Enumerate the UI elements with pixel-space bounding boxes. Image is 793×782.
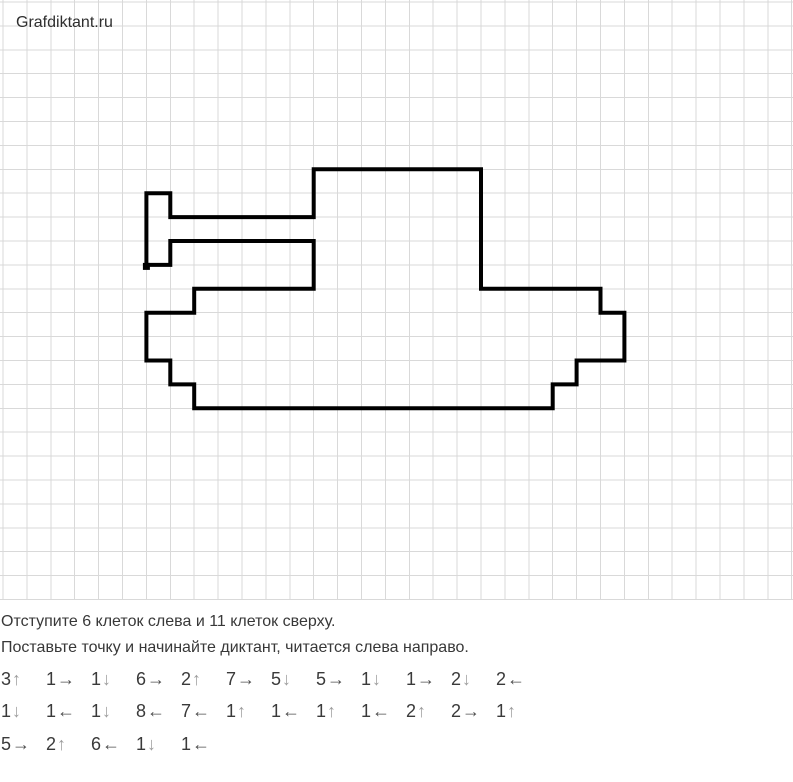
step-count: 1 — [316, 701, 326, 721]
arrow-up-icon: ↑ — [416, 701, 426, 721]
arrow-left-icon: ← — [371, 701, 390, 721]
grid-canvas — [0, 0, 793, 601]
dictation-step: 1← — [181, 734, 226, 755]
arrow-left-icon: ← — [56, 701, 75, 721]
arrow-down-icon: ↓ — [101, 701, 111, 721]
step-count: 1 — [91, 669, 101, 689]
arrow-right-icon: → — [11, 734, 30, 754]
dictation-step: 1→ — [46, 669, 91, 690]
dictation-step: 2→ — [451, 701, 496, 722]
dictation-step: 2↑ — [406, 701, 451, 722]
dictation-step: 1↑ — [316, 701, 361, 722]
step-count: 2 — [181, 669, 191, 689]
step-count: 1 — [136, 734, 146, 754]
dictation-step: 2← — [496, 669, 541, 690]
arrow-right-icon: → — [326, 669, 345, 689]
arrow-up-icon: ↑ — [236, 701, 246, 721]
arrow-up-icon: ↑ — [11, 669, 21, 689]
dictation-step: 7→ — [226, 669, 271, 690]
step-count: 7 — [226, 669, 236, 689]
dictation-step: 1↓ — [91, 669, 136, 690]
dictation-step: 1↓ — [91, 701, 136, 722]
dictation-step: 3↑ — [1, 669, 46, 690]
dictation-step: 2↑ — [181, 669, 226, 690]
arrow-left-icon: ← — [281, 701, 300, 721]
start-point-dot — [143, 263, 150, 270]
dictation-step: 1← — [46, 701, 91, 722]
step-count: 5 — [271, 669, 281, 689]
dictation-step: 1← — [361, 701, 406, 722]
arrow-left-icon: ← — [101, 734, 120, 754]
dictation-step: 1→ — [406, 669, 451, 690]
instruction-line-2: Поставьте точку и начинайте диктант, чит… — [1, 638, 469, 658]
dictation-step: 1↓ — [136, 734, 181, 755]
instruction-line-1: Отступите 6 клеток слева и 11 клеток све… — [1, 612, 469, 632]
step-count: 5 — [1, 734, 11, 754]
dictation-row: 5→2↑6←1↓1← — [1, 728, 541, 761]
dictation-step: 1← — [271, 701, 316, 722]
step-count: 2 — [451, 701, 461, 721]
dictation-step: 2↑ — [46, 734, 91, 755]
arrow-left-icon: ← — [506, 669, 525, 689]
dictation-step: 5→ — [316, 669, 361, 690]
step-count: 1 — [91, 701, 101, 721]
step-count: 2 — [451, 669, 461, 689]
dictation-step: 1↑ — [226, 701, 271, 722]
arrow-left-icon: ← — [191, 734, 210, 754]
dictation-row: 3↑1→1↓6→2↑7→5↓5→1↓1→2↓2← — [1, 663, 541, 696]
step-count: 2 — [496, 669, 506, 689]
instructions: Отступите 6 клеток слева и 11 клеток све… — [1, 612, 469, 664]
step-count: 1 — [226, 701, 236, 721]
arrow-up-icon: ↑ — [326, 701, 336, 721]
arrow-right-icon: → — [56, 669, 75, 689]
arrow-down-icon: ↓ — [146, 734, 156, 754]
dictation-step: 6← — [91, 734, 136, 755]
step-count: 7 — [181, 701, 191, 721]
arrow-down-icon: ↓ — [461, 669, 471, 689]
dictation-step: 5→ — [1, 734, 46, 755]
dictation-step: 1↑ — [496, 701, 541, 722]
grid-lines — [0, 0, 793, 600]
step-count: 1 — [496, 701, 506, 721]
site-title: Grafdiktant.ru — [16, 14, 113, 32]
step-count: 1 — [1, 701, 11, 721]
arrow-down-icon: ↓ — [281, 669, 291, 689]
arrow-down-icon: ↓ — [371, 669, 381, 689]
step-count: 1 — [46, 669, 56, 689]
dictation-step: 5↓ — [271, 669, 316, 690]
dictation-step: 8← — [136, 701, 181, 722]
step-count: 8 — [136, 701, 146, 721]
dictation-steps: 3↑1→1↓6→2↑7→5↓5→1↓1→2↓2←1↓1←1↓8←7←1↑1←1↑… — [1, 663, 541, 761]
arrow-down-icon: ↓ — [11, 701, 21, 721]
dictation-row: 1↓1←1↓8←7←1↑1←1↑1←2↑2→1↑ — [1, 696, 541, 729]
dictation-step: 1↓ — [1, 701, 46, 722]
arrow-left-icon: ← — [146, 701, 165, 721]
arrow-right-icon: → — [236, 669, 255, 689]
arrow-right-icon: → — [416, 669, 435, 689]
step-count: 1 — [181, 734, 191, 754]
dictation-step: 7← — [181, 701, 226, 722]
arrow-down-icon: ↓ — [101, 669, 111, 689]
step-count: 1 — [271, 701, 281, 721]
page: Grafdiktant.ru Отступите 6 клеток слева … — [0, 0, 793, 782]
step-count: 1 — [406, 669, 416, 689]
step-count: 5 — [316, 669, 326, 689]
arrow-right-icon: → — [461, 701, 480, 721]
step-count: 6 — [136, 669, 146, 689]
arrow-up-icon: ↑ — [191, 669, 201, 689]
arrow-left-icon: ← — [191, 701, 210, 721]
step-count: 2 — [46, 734, 56, 754]
step-count: 1 — [46, 701, 56, 721]
dictation-step: 2↓ — [451, 669, 496, 690]
step-count: 6 — [91, 734, 101, 754]
step-count: 1 — [361, 669, 371, 689]
arrow-right-icon: → — [146, 669, 165, 689]
arrow-up-icon: ↑ — [56, 734, 66, 754]
step-count: 1 — [361, 701, 371, 721]
dictation-step: 1↓ — [361, 669, 406, 690]
dictation-step: 6→ — [136, 669, 181, 690]
step-count: 3 — [1, 669, 11, 689]
arrow-up-icon: ↑ — [506, 701, 516, 721]
step-count: 2 — [406, 701, 416, 721]
